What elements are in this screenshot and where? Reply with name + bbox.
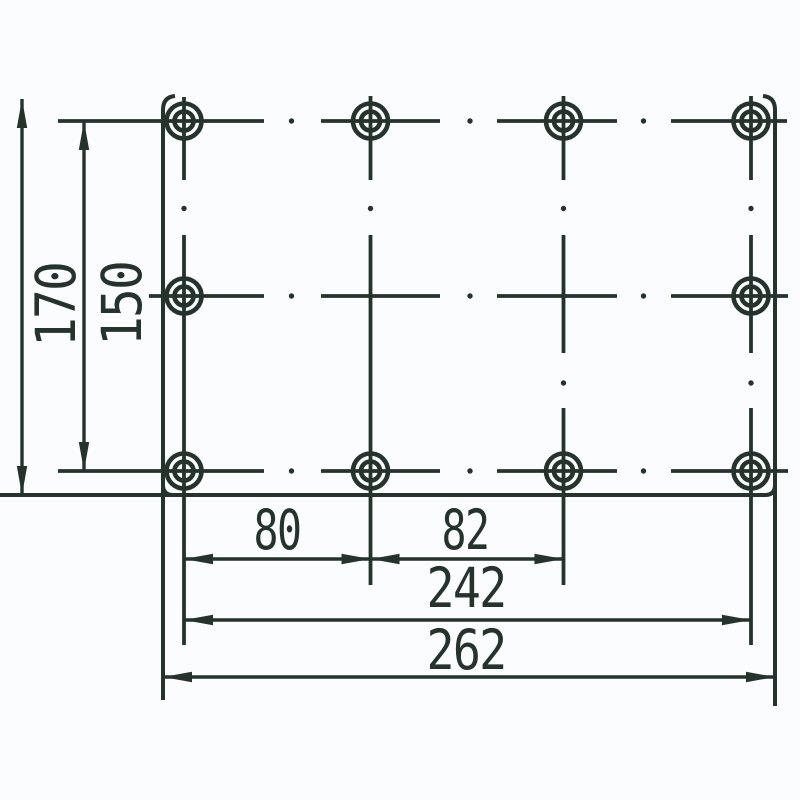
plate-corner-arc-bottom-left (163, 485, 173, 495)
dimension-hole-cols-span: 242 (184, 556, 751, 625)
arrowhead-left (163, 672, 192, 682)
dimension-hole-gap-mid: 82 (371, 498, 564, 564)
plate-bottom-edge (0, 485, 775, 495)
centerline-dot (289, 293, 294, 298)
centerline-dot (641, 468, 646, 473)
centerline-row-middle (149, 293, 788, 298)
centerline-dot (467, 468, 472, 473)
centerline-dot (641, 293, 646, 298)
arrowhead-right (722, 615, 751, 625)
dim-label-plate-height: 170 (24, 263, 88, 347)
arrowhead-down (17, 466, 27, 495)
dim-label-hole-gap-mid: 82 (442, 498, 489, 562)
centerline-dot (289, 468, 294, 473)
arrowhead-right (535, 554, 564, 564)
centerline-col-2 (368, 96, 373, 585)
arrowhead-left (184, 554, 213, 564)
dimension-plate-width: 262 (163, 618, 775, 682)
centerline-dot (467, 118, 472, 123)
dim-label-hole-gap-left: 80 (254, 498, 301, 562)
centerline-dot (289, 118, 294, 123)
arrowhead-up (79, 121, 89, 150)
centerline-dot (561, 380, 566, 385)
centerline-col-4 (748, 96, 753, 645)
dim-label-plate-width: 262 (427, 618, 506, 682)
centerline-col-3 (561, 96, 566, 585)
plate-right-edge (763, 96, 775, 706)
dim-label-hole-rows-span: 150 (90, 262, 154, 346)
dimension-plate-height: 170 (17, 99, 88, 495)
arrowhead-left (184, 615, 213, 625)
centerline-dot (368, 206, 373, 211)
centerline-dot (641, 118, 646, 123)
centerline-dot (467, 293, 472, 298)
dimension-hole-gap-left: 80 (184, 498, 371, 564)
centerline-dot (181, 206, 186, 211)
arrowhead-right (342, 554, 371, 564)
technical-drawing: 170 150 80 82 242 262 (0, 0, 800, 800)
centerline-col-1 (181, 97, 186, 645)
dimension-hole-rows-span: 150 (79, 121, 154, 471)
centerline-dot (748, 380, 753, 385)
dim-label-hole-cols-span: 242 (427, 556, 506, 620)
arrowhead-left (371, 554, 400, 564)
plate-left-edge (163, 96, 175, 700)
centerline-dot (561, 206, 566, 211)
arrowhead-down (79, 442, 89, 471)
arrowhead-right (746, 672, 775, 682)
centerline-dot (748, 206, 753, 211)
drawing-page: 170 150 80 82 242 262 (0, 0, 800, 800)
plate-outline (0, 96, 775, 706)
arrowhead-up (17, 99, 27, 128)
